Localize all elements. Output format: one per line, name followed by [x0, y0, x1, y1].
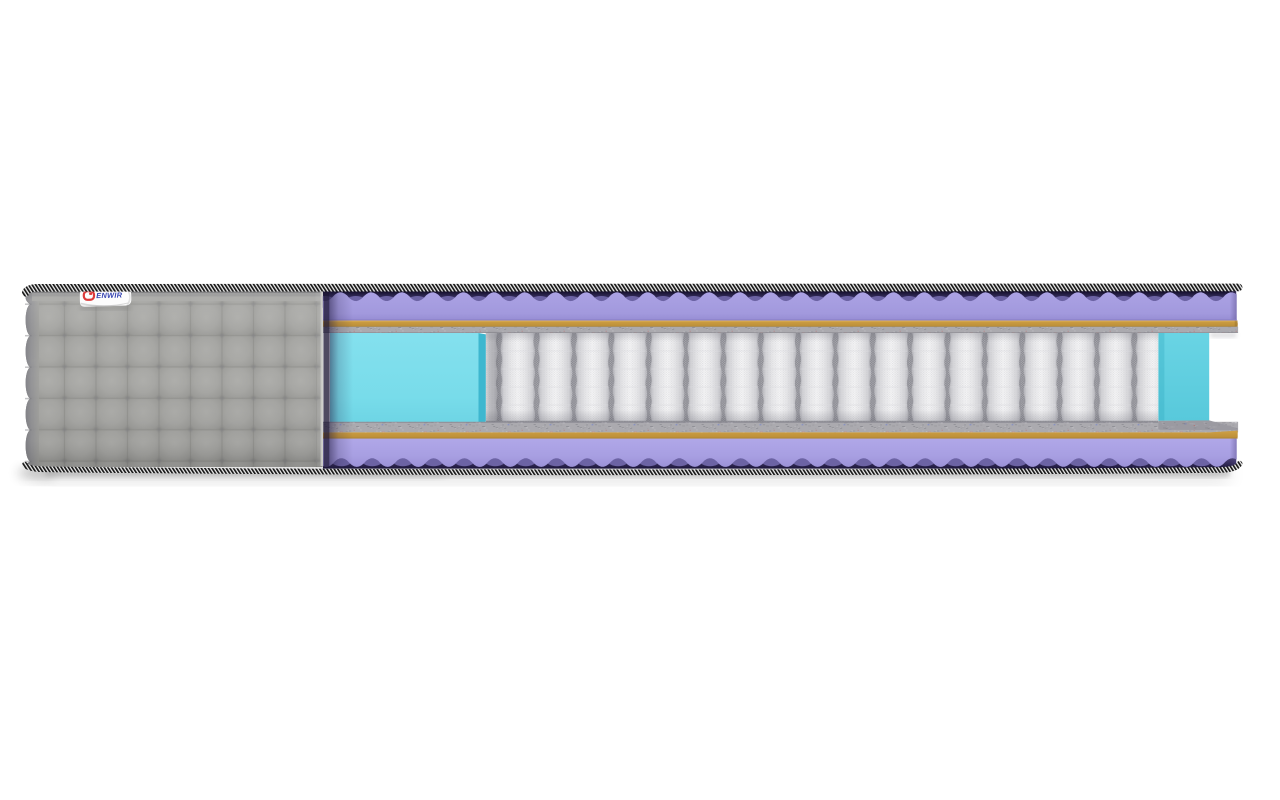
svg-text:ENWIR: ENWIR	[96, 291, 123, 301]
